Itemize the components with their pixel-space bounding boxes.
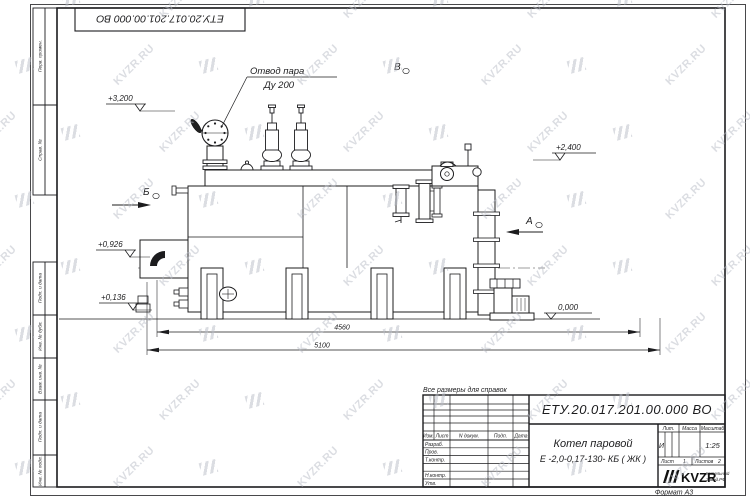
elevation-2400: +2,400 <box>533 143 596 160</box>
blueprint-canvas: Перв. примен. Справ. № Подп. и дата Инв.… <box>0 0 750 500</box>
view-arrow-a: А <box>506 216 543 235</box>
dim-4560-label: 4560 <box>334 325 350 332</box>
callout-line2: Ду 200 <box>263 80 295 91</box>
reference-note: Все размеры для справок <box>423 386 508 394</box>
side-label-perv-primen: Перв. примен. <box>38 40 44 72</box>
elevation-0136-label: +0,136 <box>101 293 126 302</box>
side-label-inv-dubl: Инв. № дубл. <box>38 321 44 351</box>
row-razrab: Разраб. <box>425 442 443 448</box>
view-arrow-b: Б <box>112 187 159 208</box>
scale-value: 1:25 <box>705 441 720 450</box>
row-utv: Утв. <box>425 481 436 487</box>
product-name-line2: Е -2,0-0,17-130- КБ ( ЖК ) <box>540 454 646 464</box>
format-label: Формат А3 <box>655 490 693 497</box>
title-block: Изм. Лист N докум. Подп. Дата Разраб. Пр… <box>423 395 730 487</box>
lit-header: Лит. <box>662 426 675 432</box>
pressure-gauge-icon <box>473 168 481 176</box>
row-tkontr: Т.контр. <box>425 457 445 463</box>
callout-line1: Отвод пара <box>250 66 304 77</box>
manhole <box>220 287 237 301</box>
rear-housing <box>432 144 481 186</box>
list-label: Лист <box>660 459 674 465</box>
view-v-label: В <box>394 62 401 73</box>
side-label-podp-data-1: Подп. и дата <box>38 273 44 303</box>
side-label-vzam-inv: Взам. инв. № <box>38 364 44 394</box>
view-a-label: А <box>525 216 533 227</box>
side-label-sprav-n: Справ. № <box>38 139 44 161</box>
company-logo: KVZR Котельный Завод.РФ <box>663 470 730 485</box>
elevation-2400-label: +2,400 <box>556 143 581 152</box>
elevation-0926-label: +0,926 <box>98 240 123 249</box>
col-izm: Изм. <box>423 434 434 440</box>
lit-value: И <box>659 443 665 450</box>
mass-header: Масса <box>682 426 697 432</box>
elevation-0000-label: 0,000 <box>558 303 579 312</box>
side-label-inv-podl: Инв. № подл. <box>38 456 44 486</box>
elevation-0000: 0,000 <box>544 303 592 319</box>
company-line1: Котельный <box>706 471 730 476</box>
burner-box <box>140 240 188 278</box>
list-value: 1 <box>683 459 686 465</box>
view-label-v: В <box>394 62 409 74</box>
collector-dome <box>241 161 253 170</box>
title-doc-number: ЕТУ.20.017.201.00.000 ВО <box>542 402 712 417</box>
listov-value: 2 <box>717 459 721 465</box>
dim-5100-label: 5100 <box>314 343 330 350</box>
col-data: Дата <box>513 434 527 440</box>
frame-side-columns: Перв. примен. Справ. № Подп. и дата Инв.… <box>33 8 57 487</box>
drawing-sheet: Перв. примен. Справ. № Подп. и дата Инв.… <box>0 0 750 500</box>
company-line2: Завод.РФ <box>706 477 726 482</box>
top-doc-number: ЕТУ.20.017.201.00.000 ВО <box>96 13 224 25</box>
listov-label: Листов <box>694 459 714 465</box>
safety-valve-2 <box>290 105 312 170</box>
top-doc-number-box: ЕТУ.20.017.201.00.000 ВО <box>75 8 245 31</box>
feed-pump-unit <box>490 279 534 320</box>
side-label-podp-data-2: Подп. и дата <box>38 412 44 442</box>
handwheel-icon <box>189 118 203 134</box>
elevation-3200-label: +3,200 <box>108 94 133 103</box>
steam-outlet-callout: Отвод пара Ду 200 <box>221 66 337 128</box>
elevation-3200: +3,200 <box>106 94 175 111</box>
col-podp: Подп. <box>494 434 507 440</box>
safety-valve-1 <box>261 105 283 170</box>
row-prov: Пров. <box>425 450 438 456</box>
col-list: Лист <box>435 434 449 440</box>
row-nkontr: Н.контр. <box>425 473 446 479</box>
scale-header: Масштаб <box>701 426 725 432</box>
boiler-assembly <box>136 105 534 320</box>
view-b-label: Б <box>143 187 150 198</box>
col-ndoc: N докум. <box>459 434 479 440</box>
product-name-line1: Котел паровой <box>554 438 633 450</box>
